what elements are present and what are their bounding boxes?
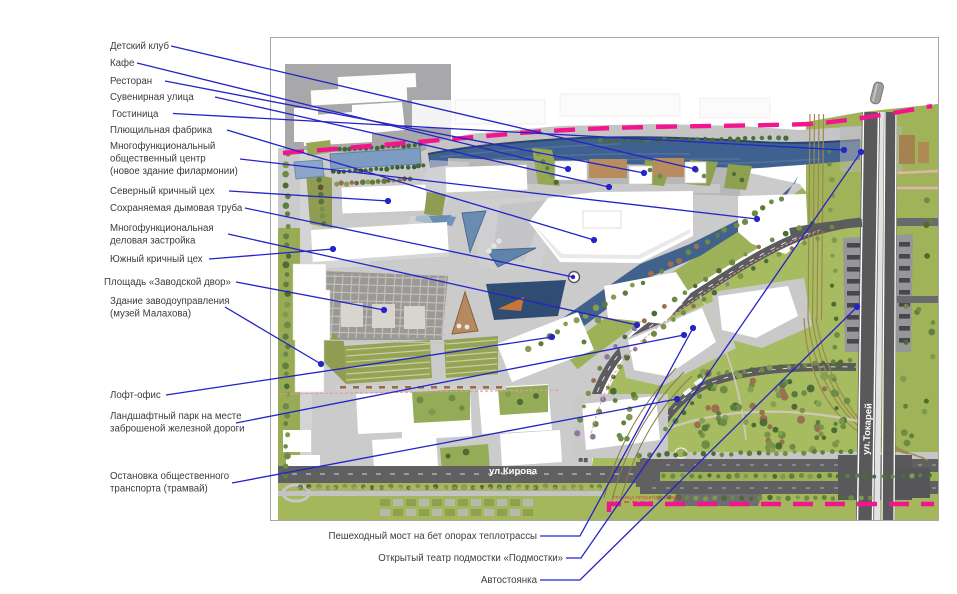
svg-text:Автостоянка: Автостоянка bbox=[481, 575, 538, 586]
svg-text:Северный кричный цех: Северный кричный цех bbox=[110, 186, 215, 197]
svg-text:Площадь «Заводской двор»: Площадь «Заводской двор» bbox=[104, 277, 231, 288]
svg-text:Сохраняемая дымовая труба: Сохраняемая дымовая труба bbox=[110, 203, 243, 214]
svg-text:Плющильная фабрика: Плющильная фабрика bbox=[110, 125, 213, 136]
svg-text:Гостиница: Гостиница bbox=[112, 109, 159, 120]
svg-text:Остановка общественноготранспо: Остановка общественноготранспорта (трамв… bbox=[110, 471, 229, 495]
svg-text:Сувенирная улица: Сувенирная улица bbox=[110, 92, 194, 103]
svg-text:Лофт-офис: Лофт-офис bbox=[110, 390, 161, 401]
svg-text:Многофункциональнаяделовая зас: Многофункциональнаяделовая застройка bbox=[110, 223, 214, 247]
svg-text:Ландшафтный парк на местезабро: Ландшафтный парк на местезаброшеной желе… bbox=[110, 411, 245, 435]
svg-text:Кафе: Кафе bbox=[110, 58, 134, 69]
svg-text:Многофункциональныйобщественны: Многофункциональныйобщественный центр(но… bbox=[110, 141, 238, 177]
svg-text:ул.Кирова: ул.Кирова bbox=[489, 466, 538, 477]
svg-text:Здание заводоуправления(музей: Здание заводоуправления(музей Малахова) bbox=[110, 296, 230, 320]
svg-text:Детский клуб: Детский клуб bbox=[110, 41, 170, 52]
svg-text:Южный кричный цех: Южный кричный цех bbox=[110, 254, 203, 265]
svg-text:Пешеходный мост на бет опорах: Пешеходный мост на бет опорах теплотрасс… bbox=[329, 531, 537, 542]
svg-text:Ресторан: Ресторан bbox=[110, 76, 152, 87]
svg-text:Открытый театр подмостки «Подм: Открытый театр подмостки «Подмостки» bbox=[378, 553, 563, 564]
